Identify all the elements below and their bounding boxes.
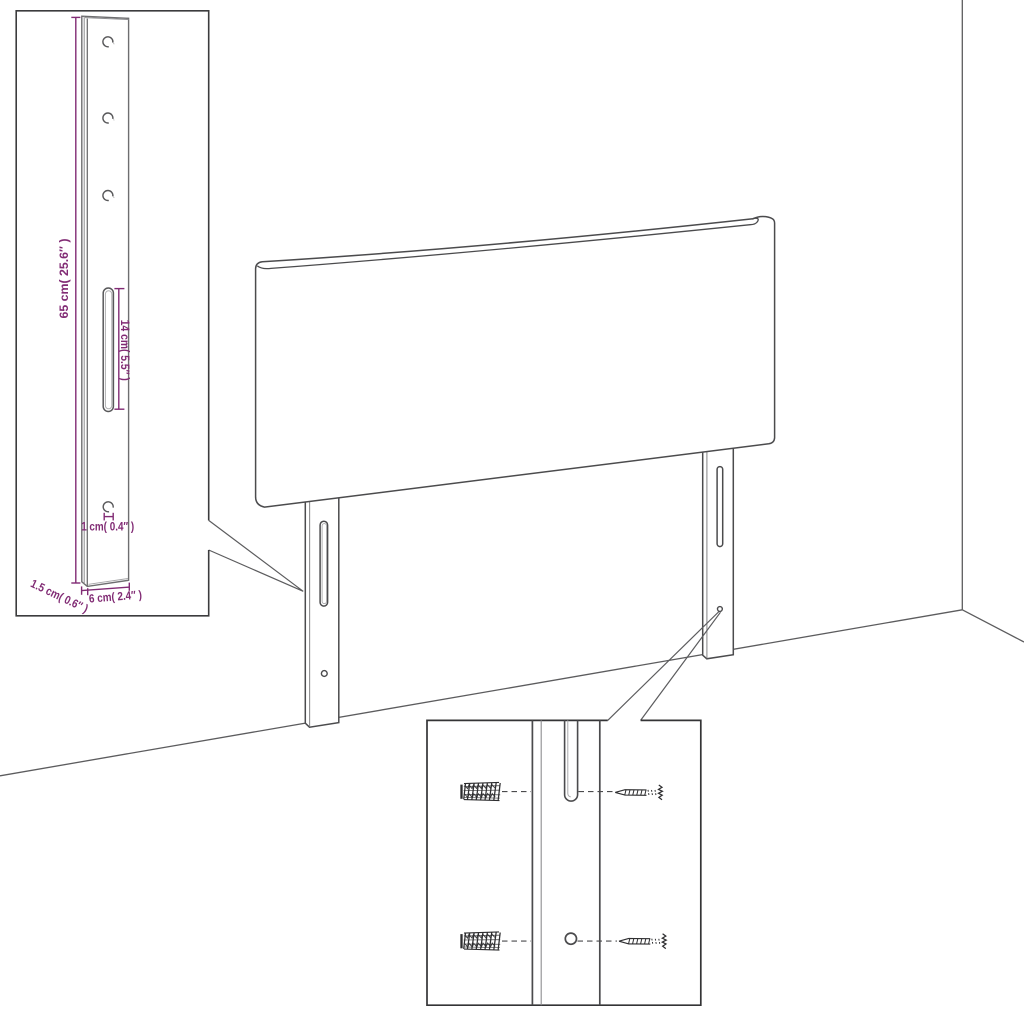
svg-text:65 cm( 25.6″ ): 65 cm( 25.6″ ) (57, 238, 71, 318)
svg-text:14 cm( 5.5″ ): 14 cm( 5.5″ ) (118, 320, 132, 381)
svg-text:1 cm( 0.4″ ): 1 cm( 0.4″ ) (81, 519, 134, 533)
